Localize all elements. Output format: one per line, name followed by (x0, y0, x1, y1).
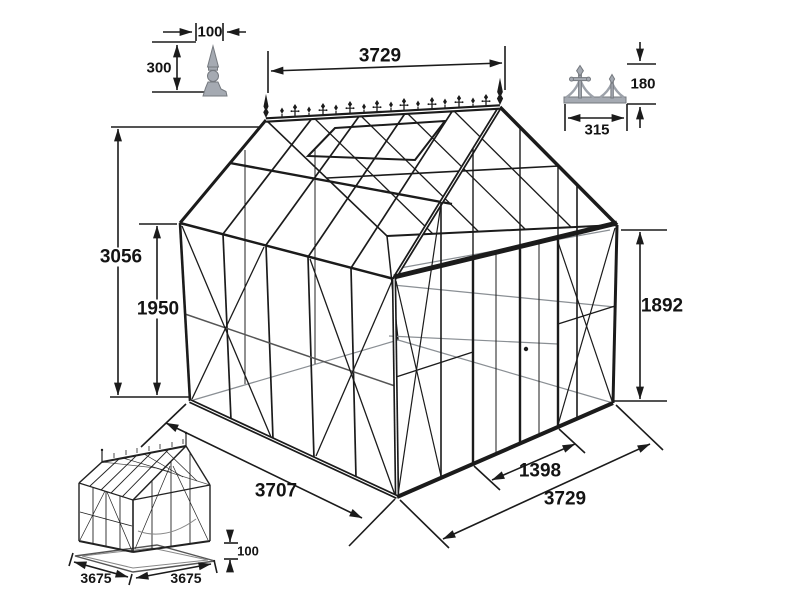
roof (180, 107, 617, 279)
dim-label-side-wall-height: 1950 (135, 300, 181, 319)
dim-label-base-height: 100 (237, 545, 259, 558)
dim-label-ridge-width: 3729 (359, 47, 401, 66)
dim-label-base-front-width: 3675 (170, 571, 201, 585)
base-sills (190, 401, 613, 497)
left-side-wall (180, 223, 395, 495)
dim-label-finial-width: 100 (197, 25, 222, 40)
cresting-ornament-icon (564, 66, 626, 104)
dim-label-eave-height: 1892 (641, 297, 683, 316)
dim-label-side-depth: 3707 (255, 482, 297, 501)
dim-label-cresting-width: 315 (584, 123, 609, 138)
greenhouse-technical-drawing: 3729 3056 1950 1892 3707 3729 1398 100 3… (0, 0, 800, 600)
dim-label-finial-height: 300 (144, 61, 173, 76)
finial-ornament-icon (203, 46, 227, 96)
dim-label-cresting-height: 180 (630, 77, 655, 92)
dim-label-door-width: 1398 (519, 462, 561, 481)
ridge-finial-front-icon (497, 78, 503, 105)
dimension-lines (110, 46, 667, 548)
mini-greenhouse (79, 432, 210, 552)
dim-label-overall-height: 3056 (98, 248, 144, 267)
ridge-finial-back-icon (263, 94, 269, 118)
door-handle (524, 347, 528, 351)
dim-label-base-side-depth: 3675 (80, 571, 111, 585)
main-greenhouse (180, 78, 617, 497)
dim-label-front-width: 3729 (544, 490, 586, 509)
double-door (496, 244, 539, 453)
dim-base-height (224, 530, 238, 572)
mini-greenhouse-inset (69, 432, 238, 585)
